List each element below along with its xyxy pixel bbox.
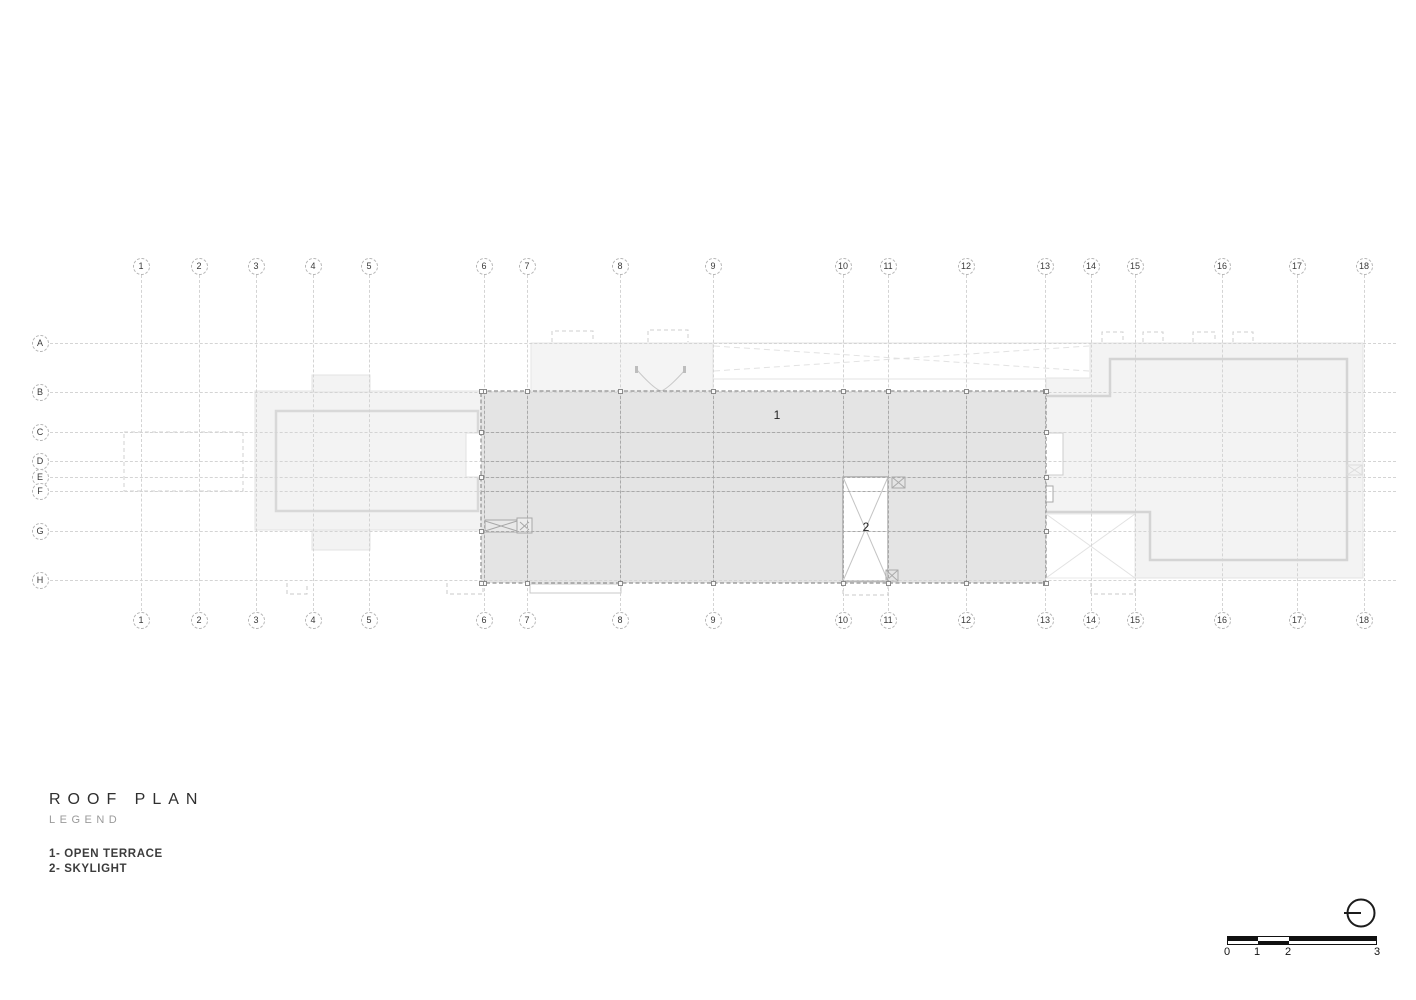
scale-tick-label-1: 1 bbox=[1254, 946, 1260, 958]
east-wing-roof bbox=[1045, 343, 1363, 578]
legend-item-skylight: 2- SKYLIGHT bbox=[49, 862, 204, 877]
scale-tick-label-3: 3 bbox=[1374, 946, 1380, 958]
open-terrace bbox=[481, 391, 1046, 583]
west-dashed-projection bbox=[124, 432, 243, 491]
roof-plan-drawing bbox=[0, 0, 1416, 1000]
legend-item-open-terrace: 1- OPEN TERRACE bbox=[49, 847, 204, 862]
entry-canopy-roof bbox=[531, 343, 713, 391]
scale-bar-labels: 0123 bbox=[0, 945, 1416, 959]
roof-ladder-detail bbox=[485, 518, 532, 533]
scale-tick-label-2: 2 bbox=[1285, 946, 1291, 958]
sloped-roof-panel bbox=[713, 343, 1090, 379]
east-chimney bbox=[1045, 433, 1063, 475]
west-wing-roof bbox=[255, 375, 482, 550]
legend-items: 1- OPEN TERRACE 2- SKYLIGHT bbox=[49, 847, 204, 877]
roof-plan-sheet: 1122334455667788991010111112121313141415… bbox=[0, 0, 1416, 1000]
east-edge-bracket bbox=[1046, 486, 1053, 502]
legend-block: ROOF PLAN LEGEND 1- OPEN TERRACE 2- SKYL… bbox=[49, 791, 204, 877]
west-roof-notch bbox=[466, 433, 482, 477]
page-title: ROOF PLAN bbox=[49, 791, 204, 809]
north-dashed-drains bbox=[552, 330, 1253, 342]
scale-tick-label-0: 0 bbox=[1224, 946, 1230, 958]
north-arrow-icon bbox=[1337, 892, 1385, 936]
scale-bar bbox=[1227, 936, 1377, 945]
south-dashed-drains bbox=[287, 583, 1135, 595]
east-courtyard bbox=[1046, 514, 1135, 578]
legend-subtitle: LEGEND bbox=[49, 814, 204, 826]
south-canopy-edge bbox=[530, 584, 621, 593]
